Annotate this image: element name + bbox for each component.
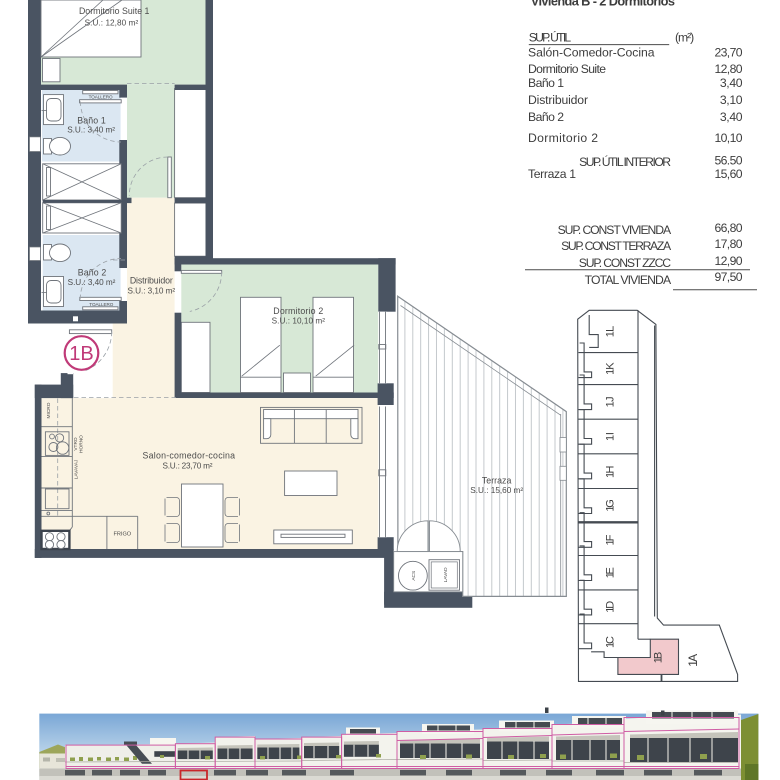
svg-text:1G: 1G xyxy=(605,499,617,512)
svg-text:VTRO: VTRO xyxy=(73,437,79,451)
svg-text:1B: 1B xyxy=(653,652,665,664)
svg-text:Dormitorio 2: Dormitorio 2 xyxy=(273,306,323,316)
svg-text:S.U.: 3,10 m²: S.U.: 3,10 m² xyxy=(127,286,175,295)
svg-text:Terraza: Terraza xyxy=(482,476,512,486)
svg-text:1E: 1E xyxy=(605,567,617,578)
svg-text:Vivienda B - 2 Dormitorios: Vivienda B - 2 Dormitorios xyxy=(531,0,675,8)
svg-text:3,40: 3,40 xyxy=(720,110,743,124)
svg-text:1J: 1J xyxy=(605,396,617,407)
svg-text:15,60: 15,60 xyxy=(715,167,743,181)
svg-text:(m²): (m²) xyxy=(675,31,694,45)
svg-text:1C: 1C xyxy=(605,636,617,648)
svg-text:1L: 1L xyxy=(605,326,617,338)
svg-text:Distribuidor: Distribuidor xyxy=(528,93,588,107)
svg-text:SUP. ÚTIL: SUP. ÚTIL xyxy=(529,30,572,45)
svg-text:HORNO: HORNO xyxy=(79,435,85,453)
svg-text:3,10: 3,10 xyxy=(720,93,743,107)
svg-text:FRIGO: FRIGO xyxy=(113,532,131,538)
svg-text:3,40: 3,40 xyxy=(720,76,743,90)
svg-text:TOALLERO: TOALLERO xyxy=(89,94,113,99)
svg-text:56.50: 56.50 xyxy=(715,154,743,168)
svg-text:1K: 1K xyxy=(605,362,617,375)
svg-text:1I: 1I xyxy=(605,432,617,441)
svg-text:97,50: 97,50 xyxy=(715,270,743,284)
svg-text:17,80: 17,80 xyxy=(715,237,743,251)
svg-text:Dormitorio Suite: Dormitorio Suite xyxy=(528,62,606,76)
svg-text:SUP. ÚTIL INTERIOR: SUP. ÚTIL INTERIOR xyxy=(579,154,671,169)
svg-text:1A: 1A xyxy=(686,654,700,667)
svg-text:Baño 1: Baño 1 xyxy=(77,115,106,125)
svg-text:S.U.: 3,40 m²: S.U.: 3,40 m² xyxy=(68,278,116,287)
svg-text:Dormitorio 2: Dormitorio 2 xyxy=(528,131,598,145)
svg-text:1B: 1B xyxy=(69,343,93,365)
svg-text:MICRO: MICRO xyxy=(46,402,52,418)
svg-text:TOALLERO: TOALLERO xyxy=(89,302,113,307)
svg-text:SUP. CONST TERRAZA: SUP. CONST TERRAZA xyxy=(561,239,672,253)
svg-text:S.U.: 10,10 m²: S.U.: 10,10 m² xyxy=(272,316,326,325)
svg-text:Salón-Comedor-Cocina: Salón-Comedor-Cocina xyxy=(528,45,655,59)
svg-text:ACS: ACS xyxy=(411,571,417,581)
svg-text:SUP. CONST VIVIENDA: SUP. CONST VIVIENDA xyxy=(558,223,672,237)
svg-text:66,80: 66,80 xyxy=(715,221,743,235)
svg-text:Baño 2: Baño 2 xyxy=(528,110,564,124)
svg-text:1D: 1D xyxy=(605,601,617,613)
svg-text:Distribuidor: Distribuidor xyxy=(130,276,173,286)
svg-text:S.U.: 3,40 m²: S.U.: 3,40 m² xyxy=(67,126,115,135)
svg-text:S.U.: 12,80 m²: S.U.: 12,80 m² xyxy=(85,19,139,28)
svg-text:SUP. CONST ZZCC: SUP. CONST ZZCC xyxy=(579,256,671,270)
svg-text:S.U.: 23,70 m²: S.U.: 23,70 m² xyxy=(163,461,213,470)
svg-text:TOTAL VIVIENDA: TOTAL VIVIENDA xyxy=(585,273,672,287)
svg-text:Dormitorio Suite 1: Dormitorio Suite 1 xyxy=(79,6,150,16)
svg-text:Baño 2: Baño 2 xyxy=(78,267,107,277)
svg-text:23,70: 23,70 xyxy=(715,45,743,59)
svg-text:Terraza 1: Terraza 1 xyxy=(528,167,576,181)
svg-text:Baño 1: Baño 1 xyxy=(528,76,564,90)
svg-text:S.U.: 15,60 m²: S.U.: 15,60 m² xyxy=(470,486,523,495)
svg-text:10,10: 10,10 xyxy=(715,131,743,145)
svg-text:LAVAVAJ: LAVAVAJ xyxy=(74,459,80,479)
svg-text:1F: 1F xyxy=(605,534,617,545)
svg-text:12,80: 12,80 xyxy=(715,62,743,76)
svg-text:Salon-comedor-cocina: Salon-comedor-cocina xyxy=(143,451,236,461)
svg-text:LAVAD: LAVAD xyxy=(443,567,449,583)
svg-text:1H: 1H xyxy=(605,466,617,479)
svg-text:12,90: 12,90 xyxy=(715,254,743,268)
